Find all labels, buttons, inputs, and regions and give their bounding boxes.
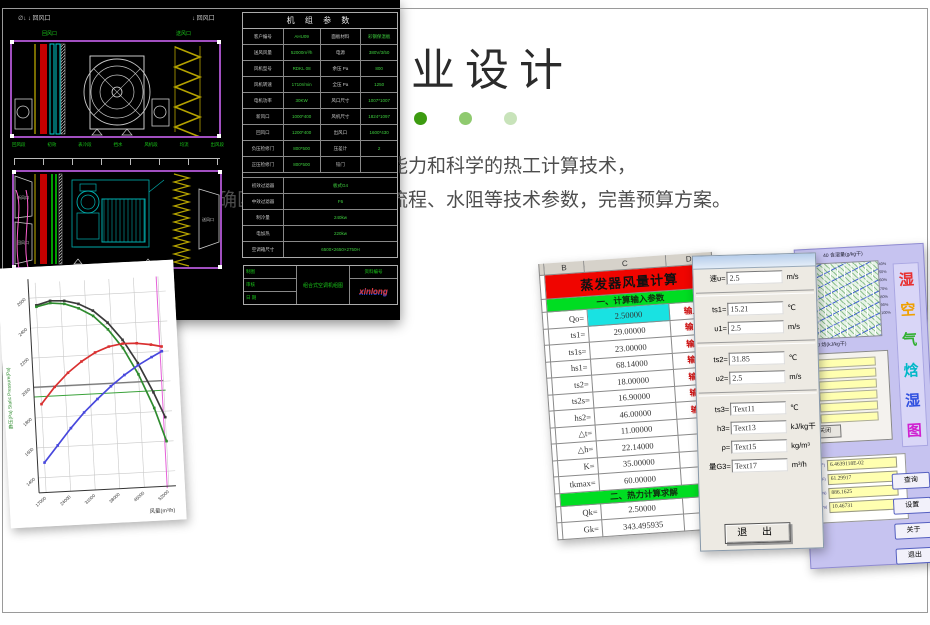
field-unit: kg/m³ [791,441,810,451]
param-cell: 1200*400 [284,125,321,140]
param-cell: 1007*1007 [361,93,397,108]
cad-label-return-port: 回风口 [42,30,57,37]
ahu-lower-elevation: 新风口 回风口 送风口 [12,170,222,269]
field-unit: ℃ [787,303,796,312]
param-cell: 正压检修门 [243,157,284,172]
ahu-lower-drawing: 新风口 回风口 送风口 [14,172,220,267]
section-label: 挡水 [113,142,122,148]
section-label: 均流 [180,142,189,148]
param-table-row: 风机转速1710r/min全压 Pa1250 [243,77,397,93]
param-cell: 新风口 [243,109,284,124]
param-cell: 240kw [284,210,397,225]
field-input[interactable]: Text15 [731,439,787,454]
param-cell: 风口尺寸 [321,93,362,108]
field-unit: m³/h [792,460,807,469]
param-cell: 电加热 [243,226,284,241]
param-table-row: 初效过滤器板式G4 [243,178,397,194]
page: 专业设计 专业的设计能力和科学的热工计算技术， 准确匹配盘管冷热量、流程、水阻等… [0,0,930,625]
param-cell: 1000*400 [284,109,321,124]
vertical-title-char: 湿 [905,389,921,411]
param-cell: RDKL 08 [284,61,321,76]
input-field[interactable] [820,400,878,412]
param-cell: 初效过滤器 [243,178,284,193]
param-cell: 送风风量 [243,45,284,60]
unit-parameter-table: 机 组 参 数客户编号AHU09面板材料彩钢保温板送风风量52000m³/h电源… [242,12,398,258]
param-cell: AHU09 [284,29,321,44]
section-label: 出风段 [210,142,224,148]
var-label: Gk= [562,520,603,539]
param-cell: 压差计 [321,141,362,156]
param-table-title: 机 组 参 数 [243,13,397,29]
ahu-upper-elevation [10,40,221,138]
app-button-column: 查询设置关于退出 [892,472,930,565]
param-cell: F6 [284,194,397,209]
field-label: υ2= [698,374,728,384]
field-label: υ1= [697,324,727,334]
field-label: h3= [700,424,730,434]
ahu-upper-drawing [12,42,219,136]
field-unit: ℃ [789,353,798,362]
input-field[interactable] [817,356,875,368]
input-field[interactable] [820,411,878,423]
vertical-title-char: 空 [900,298,916,320]
input-field[interactable] [818,367,876,379]
param-cell: 全压 Pa [321,77,362,92]
设置-button[interactable]: 设置 [893,497,930,515]
vertical-title-char: 气 [902,329,918,351]
param-cell [361,157,397,172]
param-table-row: 送风风量52000m³/h电源380V/3/50 [243,45,397,61]
field-unit: m/s [788,322,800,331]
humidity-axis-label: 40 含湿量(g/kg干) [823,250,863,259]
rh-label: 50% [879,270,889,275]
param-cell: 2 [361,141,397,156]
vertical-title-char: 图 [906,419,922,441]
title-block-drawing-name: 组合式空调机组图 [297,266,350,304]
rh-label: 100% [881,311,891,316]
param-cell: 铰门 [321,157,362,172]
section-label: 表冷段 [78,142,92,148]
dialog-field-row: 量G3=Text17m³/h [699,454,821,476]
field-label: ts3= [699,405,729,415]
field-unit: kJ/kg干 [791,420,816,432]
cad-return-air-mark-left: ∅↓ ↓ 回风口 [18,13,51,22]
rh-label: 80% [880,294,890,299]
field-input[interactable]: 2.5 [728,320,784,335]
x-axis-title: 风量(m³/h) [149,507,175,515]
param-cell: 制冷量 [243,210,284,225]
air-calc-dialog: 速υ=2.5m/sts1=15.21℃υ1=2.5m/sts2=31.85℃υ2… [692,252,824,551]
dimension-line [14,158,220,165]
查询-button[interactable]: 查询 [892,472,930,490]
field-input[interactable]: 2.5 [726,270,782,285]
param-cell: 1250 [361,77,397,92]
rh-label: 90% [881,303,891,308]
param-cell: 220kw [284,226,397,241]
company-logo: xinlong [350,279,397,304]
rh-percent-labels: 40%50%60%70%80%90%100% [878,262,890,316]
section-label: 风机段 [144,142,158,148]
param-table-row: 新风口1000*400风机尺寸1824*1097 [243,109,397,125]
port-label-supply-air: 送风口 [202,216,214,222]
param-table-row: 正压检修门800*500铰门 [243,157,397,173]
param-table-row: 空调箱尺寸6500×2650×2750H [243,242,397,257]
cad-return-air-mark-right: ↓ 回风口 [192,13,215,22]
title-block-cell: 审核 [244,279,296,292]
param-cell: 彩钢保温板 [361,29,397,44]
param-table-row: 负压检修门800*500压差计2 [243,141,397,157]
result-value: 10.46731 [829,498,899,513]
fan-curve-chart: 1700024000310003800045000520001400160018… [0,260,187,529]
param-cell: 负压检修门 [243,141,284,156]
param-cell: 1600*430 [361,125,397,140]
cad-label-supply-port: 送风口 [176,30,191,37]
section-label: 初效 [47,142,56,148]
关于-button[interactable]: 关于 [894,522,930,540]
field-input[interactable]: Text11 [730,401,786,416]
title-block-cell: 制图 [244,266,296,279]
input-field[interactable] [819,378,877,390]
field-label: ts1= [696,305,726,315]
dialog-field-row: 速υ=2.5m/s [693,266,815,288]
param-cell: 风机尺寸 [321,109,362,124]
input-field[interactable] [819,389,877,401]
param-cell: 电源 [321,45,362,60]
param-table-row: 风机型号RDKL 08余压 Pa800 [243,61,397,77]
rh-label: 60% [879,278,889,283]
param-cell: 回风口 [243,125,284,140]
param-cell: 800*500 [284,157,321,172]
fan-curve-chart-card: 1700024000310003800045000520001400160018… [0,260,187,529]
param-cell: 空调箱尺寸 [243,242,284,257]
param-cell: 1824*1097 [361,109,397,124]
param-cell: 800*500 [284,141,321,156]
dialog-field-row: υ1=2.5m/s [695,316,817,338]
param-cell: 380V/3/50 [361,45,397,60]
param-table-row: 制冷量240kw [243,210,397,226]
exit-button[interactable]: 退 出 [724,522,791,544]
param-cell: 52000m³/h [284,45,321,60]
rh-label: 40% [878,262,888,267]
param-cell: 余压 Pa [321,61,362,76]
app-vertical-title: 湿空气焓湿图 [893,262,929,447]
dialog-field-row: υ2=2.5m/s [696,366,818,388]
field-label: ts2= [698,355,728,365]
param-table-row: 电加热220kw [243,226,397,242]
field-input[interactable]: 15.21 [727,301,783,316]
drawing-title-block: 制图审核日 期 组合式空调机组图 资料编号 xinlong [243,265,398,305]
param-cell: 风机转速 [243,77,284,92]
param-table-row: 客户编号AHU09面板材料彩钢保温板 [243,29,397,45]
field-input[interactable]: Text17 [732,458,788,473]
param-cell: 电机功率 [243,93,284,108]
param-table-row: 回风口1200*400出风口1600*430 [243,125,397,141]
param-cell: 出风口 [321,125,362,140]
param-table-row: 中效过滤器F6 [243,194,397,210]
退出-button[interactable]: 退出 [896,547,930,565]
param-cell: 风机型号 [243,61,284,76]
section-label: 回风段 [12,142,26,148]
title-block-cell: 日 期 [244,292,296,304]
title-block-doc-no: 资料编号 [350,266,397,279]
param-cell: 30KW [284,93,321,108]
field-label: 量G3= [701,461,731,473]
param-cell: 板式G4 [284,178,397,193]
field-input[interactable]: 2.5 [729,370,785,385]
param-table-row: 电机功率30KW风口尺寸1007*1007 [243,93,397,109]
pink-curve-fragment [10,190,36,275]
param-cell: 中效过滤器 [243,194,284,209]
vertical-title-char: 焓 [903,359,919,381]
rh-label: 70% [880,286,890,291]
field-input[interactable]: 31.85 [729,351,785,366]
field-label: ρ= [700,443,730,453]
field-unit: m/s [786,272,798,281]
param-cell: 面板材料 [321,29,362,44]
ahu-section-labels-row: 回风段初效表冷段挡水风机段均流出风段 [12,142,224,148]
param-cell: 6500×2650×2750H [284,242,397,257]
field-unit: m/s [789,372,801,381]
field-label: 速υ= [695,273,725,285]
param-cell: 800 [361,61,397,76]
field-input[interactable]: Text13 [731,420,787,435]
field-unit: ℃ [790,403,799,412]
vertical-title-char: 湿 [898,268,914,290]
param-cell: 1710r/min [284,77,321,92]
param-cell: 客户编号 [243,29,284,44]
